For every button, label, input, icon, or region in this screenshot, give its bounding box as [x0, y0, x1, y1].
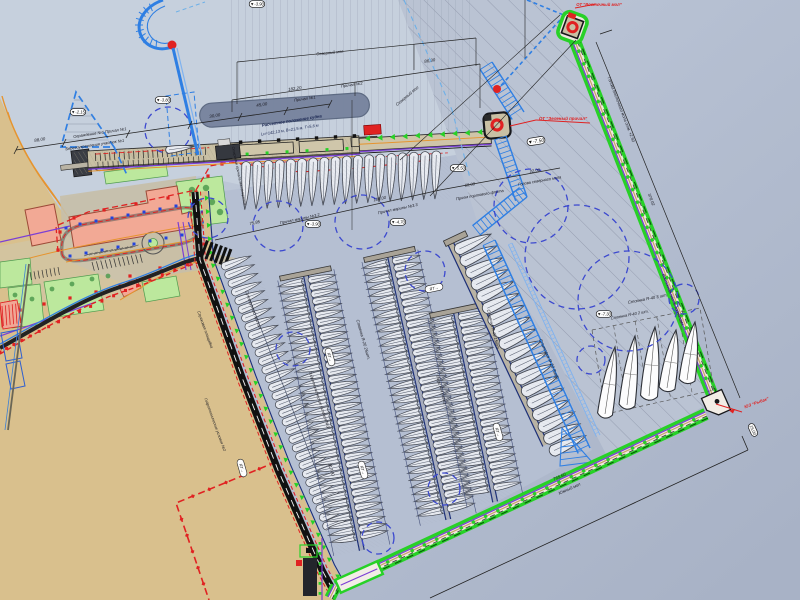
svg-text:▼-5.50: ▼-5.50 — [451, 166, 465, 171]
svg-text:▼-3.90: ▼-3.90 — [306, 222, 320, 227]
svg-text:▼-3.90: ▼-3.90 — [250, 2, 264, 7]
svg-text:▼-3.80: ▼-3.80 — [156, 98, 170, 103]
svg-text:▼-7.30: ▼-7.30 — [597, 312, 611, 317]
svg-text:▼-4.70: ▼-4.70 — [391, 220, 405, 225]
svg-text:▼-2.15: ▼-2.15 — [71, 110, 85, 115]
